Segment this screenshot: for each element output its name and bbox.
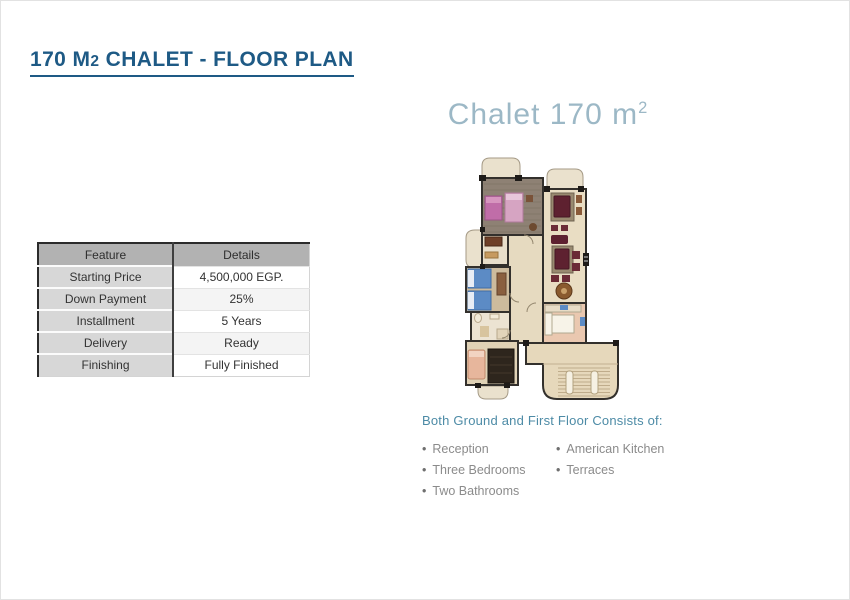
table-row: Delivery Ready	[38, 332, 310, 354]
table-row: Finishing Fully Finished	[38, 354, 310, 376]
details-cell: 5 Years	[173, 310, 310, 332]
pricing-table: Feature Details Starting Price 4,500,000…	[37, 242, 310, 377]
column-header-feature: Feature	[38, 243, 173, 266]
room-bedroom-blue	[466, 267, 510, 312]
list-item: •Reception	[422, 442, 556, 456]
room-reception	[543, 189, 589, 303]
table-row: Down Payment 25%	[38, 288, 310, 310]
floor-plan-image	[440, 145, 660, 405]
balcony-left	[466, 230, 483, 268]
details-cell: 25%	[173, 288, 310, 310]
table-row: Installment 5 Years	[38, 310, 310, 332]
slide-page: 170 M2 CHALET - FLOOR PLAN Feature Detai…	[0, 0, 850, 600]
room-master-bedroom	[482, 178, 543, 235]
consists-section: Both Ground and First Floor Consists of:…	[422, 413, 702, 505]
room-dressing	[482, 235, 508, 265]
table-header-row: Feature Details	[38, 243, 310, 266]
list-item: •American Kitchen	[556, 442, 664, 456]
hallway	[508, 233, 543, 343]
consists-list-left: •Reception •Three Bedrooms •Two Bathroom…	[422, 442, 556, 505]
feature-cell: Delivery	[38, 332, 173, 354]
room-bathroom	[471, 312, 510, 341]
details-cell: 4,500,000 EGP.	[173, 266, 310, 288]
details-cell: Ready	[173, 332, 310, 354]
plan-title: Chalet 170 m2	[437, 98, 659, 132]
balcony-top-right	[547, 169, 583, 190]
details-cell: Fully Finished	[173, 354, 310, 376]
column-header-details: Details	[173, 243, 310, 266]
bullet-icon: •	[422, 484, 426, 498]
balcony-top-left	[482, 158, 520, 179]
bullet-icon: •	[556, 442, 560, 456]
feature-cell: Starting Price	[38, 266, 173, 288]
terrace	[526, 343, 618, 399]
feature-cell: Installment	[38, 310, 173, 332]
list-item: •Terraces	[556, 463, 664, 477]
bullet-icon: •	[556, 463, 560, 477]
page-title: 170 M2 CHALET - FLOOR PLAN	[30, 48, 354, 77]
room-bedroom-bottom	[466, 341, 518, 385]
consists-list-right: •American Kitchen •Terraces	[556, 442, 664, 505]
feature-cell: Finishing	[38, 354, 173, 376]
feature-cell: Down Payment	[38, 288, 173, 310]
table-row: Starting Price 4,500,000 EGP.	[38, 266, 310, 288]
bullet-icon: •	[422, 442, 426, 456]
list-item: •Two Bathrooms	[422, 484, 556, 498]
list-item: •Three Bedrooms	[422, 463, 556, 477]
balcony-bottom	[478, 386, 508, 399]
room-kitchen	[543, 303, 586, 343]
bullet-icon: •	[422, 463, 426, 477]
consists-heading: Both Ground and First Floor Consists of:	[422, 413, 702, 428]
